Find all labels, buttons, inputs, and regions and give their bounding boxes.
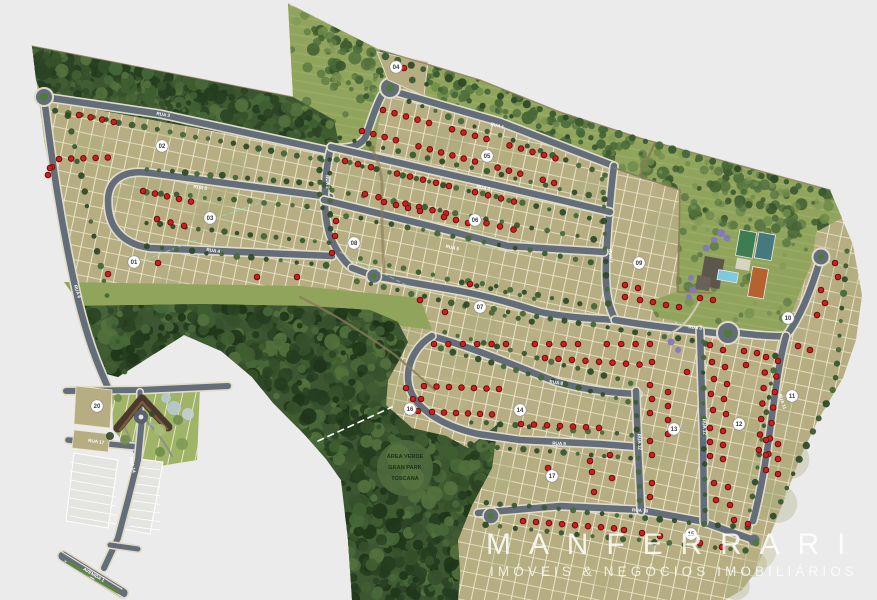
svg-text:RUA 9: RUA 9: [552, 441, 566, 446]
svg-text:09: 09: [636, 261, 643, 267]
svg-text:10: 10: [785, 316, 792, 322]
svg-text:06: 06: [472, 218, 479, 224]
svg-text:GRAN PARK: GRAN PARK: [388, 465, 421, 471]
svg-text:08: 08: [351, 241, 358, 247]
svg-text:11: 11: [789, 394, 796, 400]
svg-text:14: 14: [517, 408, 524, 414]
svg-text:20: 20: [94, 404, 101, 410]
svg-text:12: 12: [736, 422, 743, 428]
svg-text:IMÓVEIS & NEGÓCIOS IMOBILIÁRIO: IMÓVEIS & NEGÓCIOS IMOBILIÁRIOS: [490, 564, 858, 579]
svg-text:05: 05: [484, 154, 491, 160]
svg-text:04: 04: [393, 65, 400, 71]
svg-text:16: 16: [407, 407, 414, 413]
svg-text:RUA 7: RUA 7: [608, 249, 614, 263]
svg-text:ÁREA VERDE: ÁREA VERDE: [387, 453, 424, 460]
svg-text:RUA 2: RUA 2: [325, 175, 331, 189]
svg-text:17: 17: [549, 474, 556, 480]
svg-text:07: 07: [477, 305, 484, 311]
svg-text:03: 03: [207, 216, 214, 222]
svg-text:MANFERRARI: MANFERRARI: [486, 528, 863, 561]
svg-text:02: 02: [159, 144, 166, 150]
svg-text:13: 13: [671, 427, 678, 433]
svg-text:TOSCANA: TOSCANA: [391, 476, 419, 482]
svg-text:01: 01: [131, 260, 138, 266]
